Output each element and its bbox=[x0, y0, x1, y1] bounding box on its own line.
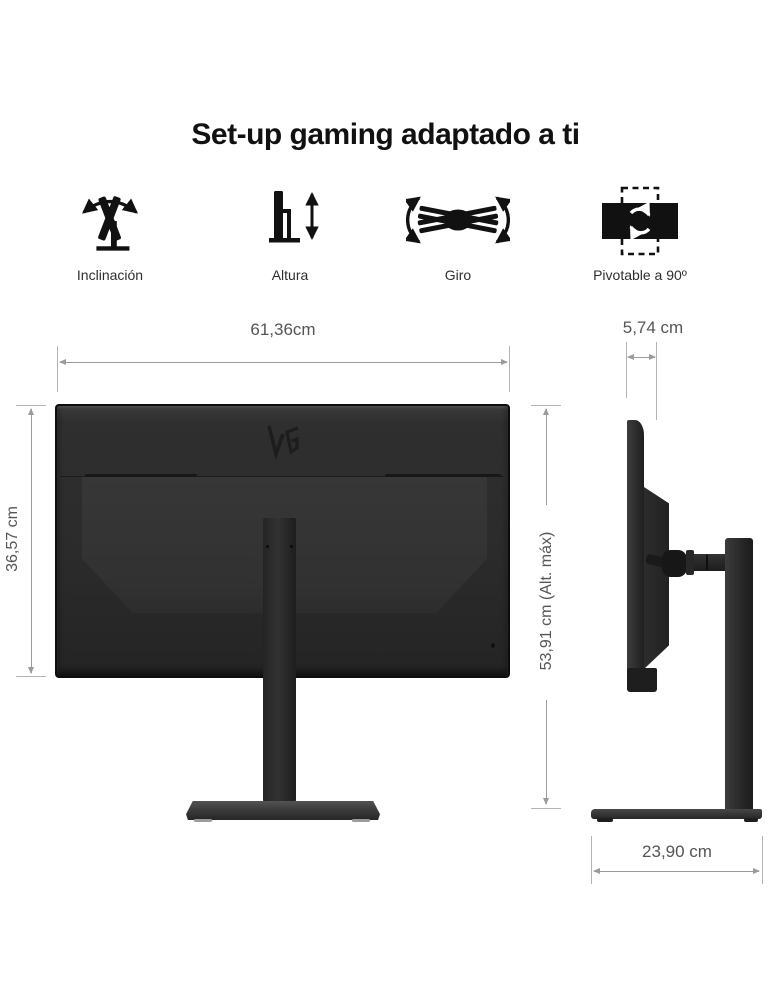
dimension-width-arrow bbox=[60, 362, 507, 363]
side-foot-pad-left bbox=[597, 818, 613, 822]
hinge-knob bbox=[662, 550, 687, 577]
side-bottom-foot bbox=[627, 668, 657, 692]
pole-screw-right bbox=[290, 545, 293, 548]
dimension-height-label: 36,57 cm bbox=[4, 500, 22, 578]
base-foot-pad-right bbox=[352, 819, 370, 822]
feature-swivel: Giro bbox=[396, 180, 520, 283]
feature-swivel-label: Giro bbox=[396, 267, 520, 283]
dimension-basedepth-label: 23,90 cm bbox=[602, 842, 752, 862]
page-title: Set-up gaming adaptado a ti bbox=[0, 118, 771, 152]
pole-screw-left bbox=[266, 545, 269, 548]
dimension-maxheight-tick-bottom bbox=[531, 808, 561, 809]
feature-height-label: Altura bbox=[228, 267, 352, 283]
monitor-side-profile bbox=[627, 420, 644, 676]
dimension-depth-tick-right bbox=[656, 342, 657, 420]
side-back-housing bbox=[644, 487, 669, 669]
dimension-depth-tick-left bbox=[626, 342, 627, 398]
dimension-height-tick-top bbox=[16, 405, 46, 406]
dimension-height-tick-bottom bbox=[16, 676, 46, 677]
swivel-icon bbox=[396, 180, 520, 262]
dimension-width-tick-left bbox=[57, 346, 58, 392]
pivot-icon bbox=[566, 180, 714, 262]
dimension-basedepth-tick-left bbox=[591, 836, 592, 884]
rear-screw-detail bbox=[491, 643, 495, 648]
dimension-maxheight-tick-top bbox=[531, 405, 561, 406]
feature-tilt: Inclinación bbox=[48, 180, 172, 283]
dimension-depth-label: 5,74 cm bbox=[593, 318, 713, 338]
stand-base-side bbox=[591, 809, 762, 819]
dimension-basedepth-arrow bbox=[594, 871, 759, 872]
product-infographic: Set-up gaming adaptado a ti Inclinación … bbox=[0, 0, 771, 1000]
feature-pivot: Pivotable a 90º bbox=[566, 180, 714, 283]
feature-height: Altura bbox=[228, 180, 352, 283]
dimension-height-arrow bbox=[31, 409, 32, 673]
vent-line-right bbox=[385, 474, 501, 477]
stand-column-side bbox=[725, 538, 753, 813]
hinge-arm-seam bbox=[706, 555, 708, 570]
dimension-maxheight-label: 53,91 cm (Alt. máx) bbox=[538, 526, 556, 676]
tilt-icon bbox=[48, 180, 172, 262]
dimension-width-tick-right bbox=[509, 346, 510, 392]
feature-tilt-label: Inclinación bbox=[48, 267, 172, 283]
dimension-maxheight-arrow-top bbox=[546, 409, 547, 505]
vent-line-left bbox=[85, 474, 197, 477]
dimension-maxheight-arrow-bottom bbox=[546, 700, 547, 804]
side-foot-pad-right bbox=[744, 818, 758, 822]
hinge-bracket bbox=[686, 550, 694, 575]
stand-base-rear bbox=[186, 801, 380, 820]
ultragear-logo bbox=[261, 422, 307, 464]
dimension-width-label: 61,36cm bbox=[183, 320, 383, 340]
dimension-depth-arrow bbox=[628, 357, 655, 358]
height-icon bbox=[228, 180, 352, 262]
feature-pivot-label: Pivotable a 90º bbox=[566, 267, 714, 283]
stand-pole-rear bbox=[263, 518, 296, 804]
dimension-basedepth-tick-right bbox=[762, 836, 763, 884]
base-foot-pad-left bbox=[194, 819, 212, 822]
